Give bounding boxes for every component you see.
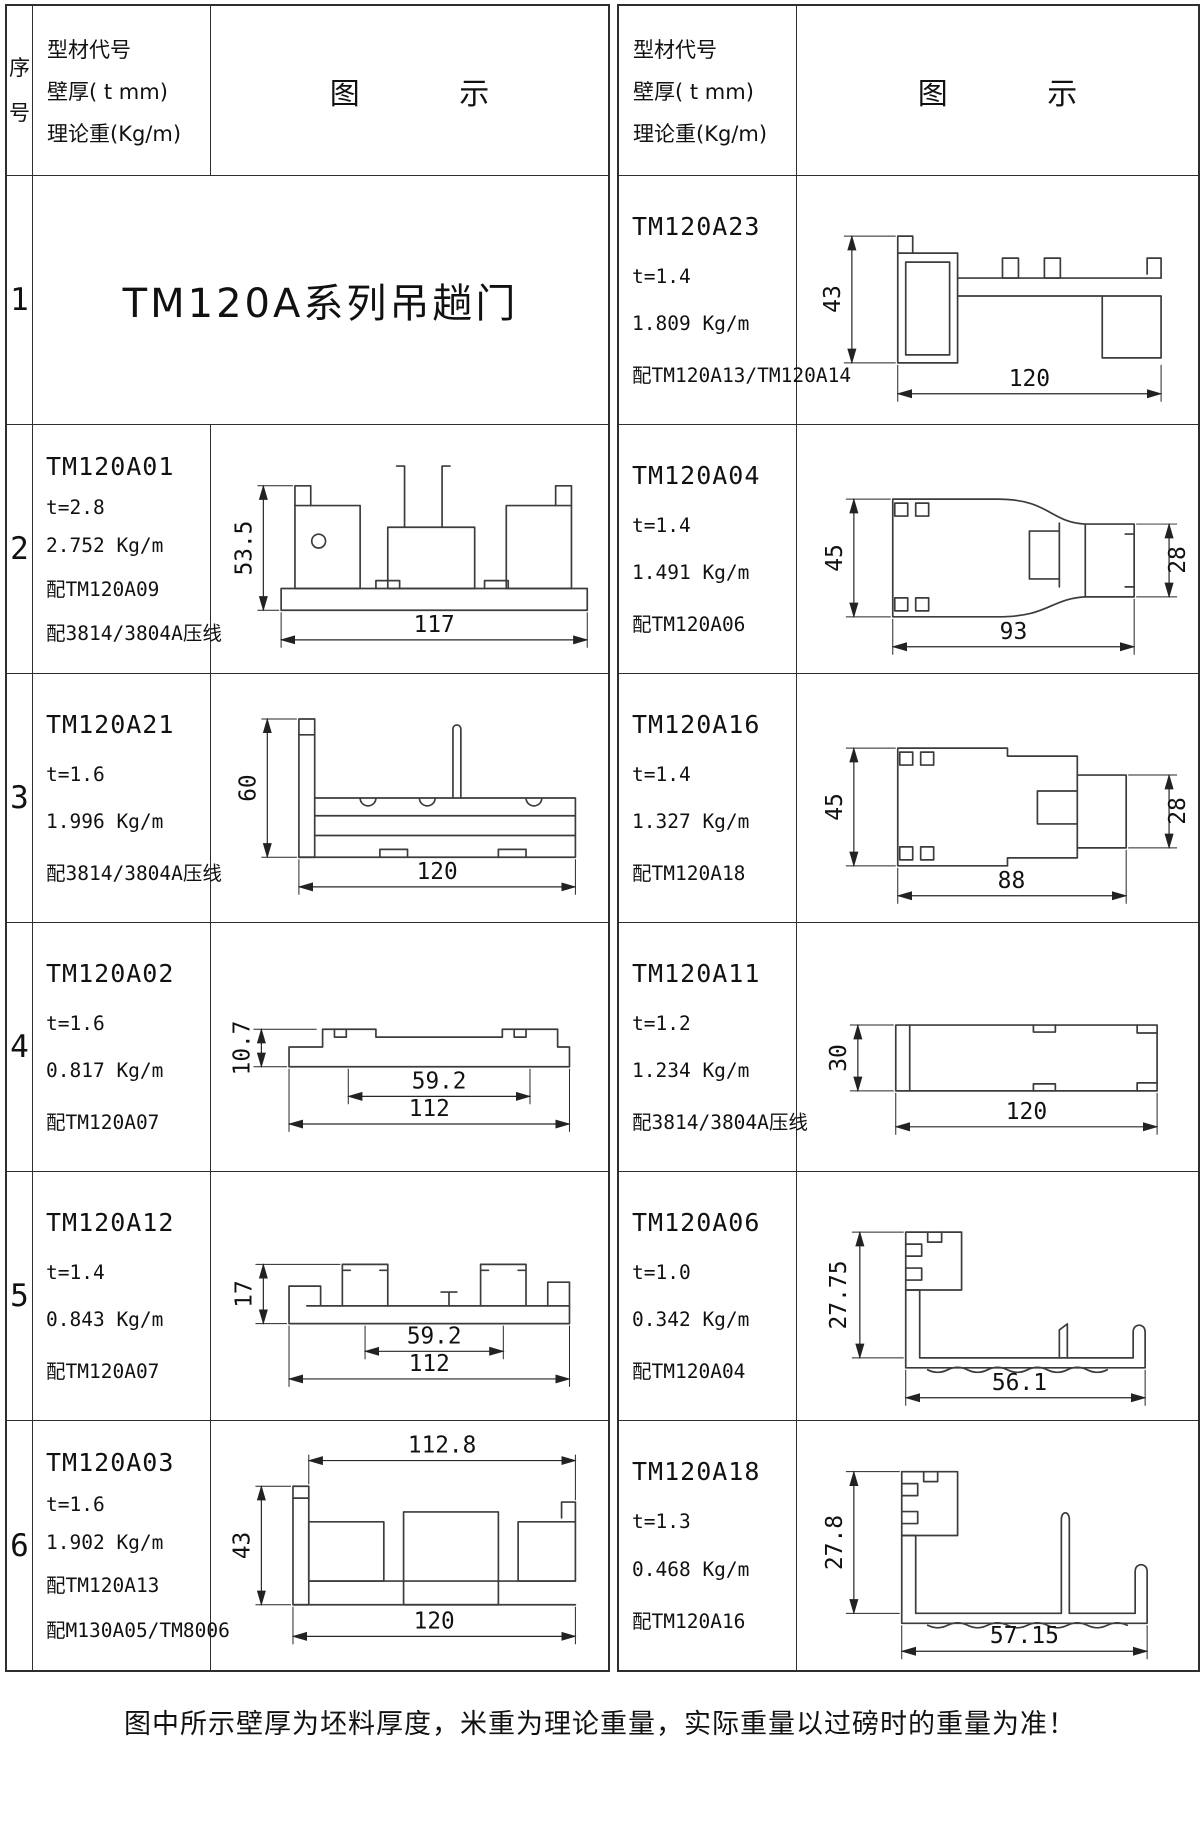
header-index: 序号 xyxy=(7,6,33,176)
pairing-profile: 配TM120A16 xyxy=(632,1605,792,1634)
pairing-profile: 配3814/3804A压线 xyxy=(46,617,206,646)
dim-height-label: 10.7 xyxy=(230,1021,256,1076)
dim-height-label: 53.5 xyxy=(232,521,258,576)
profile-weight: 1.491 Kg/m xyxy=(632,561,792,584)
row-index: 5 xyxy=(7,1172,33,1421)
profile-weight: 1.809 Kg/m xyxy=(632,312,792,335)
series-title: TM120A系列吊趟门 xyxy=(33,176,608,425)
diagram-cell: 45 28 88 xyxy=(797,674,1198,923)
header-spec-line1: 型材代号 xyxy=(633,34,796,64)
profile-drawing-TM120A11: 30 120 xyxy=(798,924,1197,1170)
row-index: 4 xyxy=(7,923,33,1172)
profile-weight: 1.234 Kg/m xyxy=(632,1059,792,1082)
profile-drawing-TM120A18: 27.8 57.15 xyxy=(798,1422,1197,1669)
wall-thickness: t=1.6 xyxy=(46,1493,206,1516)
dim-height-label: 27.8 xyxy=(822,1515,848,1570)
profile-drawing-TM120A16: 45 28 88 xyxy=(798,675,1197,921)
wall-thickness: t=1.6 xyxy=(46,763,206,786)
profile-spec: TM120A11 t=1.2 1.234 Kg/m 配3814/3804A压线 xyxy=(619,923,797,1172)
dim-height-label: 30 xyxy=(826,1044,852,1072)
diagram-cell: 43 120 xyxy=(797,176,1198,425)
profile-weight: 0.342 Kg/m xyxy=(632,1308,792,1331)
pairing-profile: 配TM120A09 xyxy=(46,573,206,602)
pairing-profile: 配TM120A13 xyxy=(46,1569,206,1598)
dim-right-height-label: 28 xyxy=(1165,546,1191,574)
profile-spec: TM120A21 t=1.6 1.996 Kg/m 配3814/3804A压线 xyxy=(33,674,211,923)
dim-inner-label: 59.2 xyxy=(407,1323,462,1349)
dim-width-label: 56.1 xyxy=(992,1370,1047,1396)
dim-height-label: 43 xyxy=(820,285,846,313)
profile-weight: 1.902 Kg/m xyxy=(46,1531,206,1554)
dim-height-label: 27.75 xyxy=(826,1260,852,1329)
dim-width-label: 120 xyxy=(414,1608,455,1634)
profile-weight: 2.752 Kg/m xyxy=(46,534,206,557)
wall-thickness: t=1.4 xyxy=(632,763,792,786)
profile-drawing-TM120A12: 17 59.2 112 xyxy=(212,1173,607,1419)
dim-height-label: 60 xyxy=(235,774,261,801)
dim-right-height-label: 28 xyxy=(1165,797,1191,825)
profile-drawing-TM120A03: 112.8 43 120 xyxy=(212,1422,607,1669)
profile-weight: 1.996 Kg/m xyxy=(46,810,206,833)
header-diagram: 图 示 xyxy=(211,6,608,176)
footer-note: 图中所示壁厚为坯料厚度，米重为理论重量，实际重量以过磅时的重量为准！ xyxy=(0,1702,1200,1741)
profile-spec: TM120A23 t=1.4 1.809 Kg/m 配TM120A13/TM12… xyxy=(619,176,797,425)
dim-width-label: 57.15 xyxy=(990,1623,1059,1649)
profile-spec: TM120A18 t=1.3 0.468 Kg/m 配TM120A16 xyxy=(619,1421,797,1670)
wall-thickness: t=1.4 xyxy=(46,1261,206,1284)
profile-spec: TM120A06 t=1.0 0.342 Kg/m 配TM120A04 xyxy=(619,1172,797,1421)
wall-thickness: t=2.8 xyxy=(46,496,206,519)
right-table: 型材代号 壁厚( t mm) 理论重(Kg/m) 图 示 TM120A23 t=… xyxy=(617,4,1200,1672)
profile-spec: TM120A04 t=1.4 1.491 Kg/m 配TM120A06 xyxy=(619,425,797,674)
header-spec: 型材代号 壁厚( t mm) 理论重(Kg/m) xyxy=(33,6,211,176)
pairing-profile: 配TM120A13/TM120A14 xyxy=(632,359,792,388)
profile-code: TM120A01 xyxy=(46,452,206,481)
dim-width-label: 120 xyxy=(417,859,458,885)
dim-width-label: 112 xyxy=(409,1096,450,1122)
pairing-profile: 配TM120A18 xyxy=(632,857,792,886)
profile-code: TM120A03 xyxy=(46,1448,206,1477)
profile-weight: 0.843 Kg/m xyxy=(46,1308,206,1331)
row-index: 6 xyxy=(7,1421,33,1670)
profile-drawing-TM120A02: 10.7 59.2 112 xyxy=(212,924,607,1170)
profile-code: TM120A02 xyxy=(46,959,206,988)
profile-drawing-TM120A04: 45 28 93 xyxy=(798,426,1197,672)
wall-thickness: t=1.3 xyxy=(632,1510,792,1533)
profile-drawing-TM120A01: 53.5 117 xyxy=(212,426,607,672)
wall-thickness: t=1.4 xyxy=(632,514,792,537)
header-spec-line2: 壁厚( t mm) xyxy=(47,76,210,106)
header-spec: 型材代号 壁厚( t mm) 理论重(Kg/m) xyxy=(619,6,797,176)
profile-code: TM120A04 xyxy=(632,461,792,490)
pairing-profile: 配TM120A06 xyxy=(632,608,792,637)
row-index: 2 xyxy=(7,425,33,674)
dim-height-label: 45 xyxy=(822,544,848,572)
diagram-cell: 17 59.2 112 xyxy=(211,1172,608,1421)
profile-code: TM120A21 xyxy=(46,710,206,739)
header-spec-line1: 型材代号 xyxy=(47,34,210,64)
diagram-cell: 45 28 93 xyxy=(797,425,1198,674)
diagram-cell: 60 120 xyxy=(211,674,608,923)
pairing-profile: 配TM120A07 xyxy=(46,1106,206,1135)
row-index: 1 xyxy=(7,176,33,425)
profile-weight: 0.817 Kg/m xyxy=(46,1059,206,1082)
dim-width-label: 93 xyxy=(1000,619,1028,645)
pairing-profile: 配TM120A04 xyxy=(632,1355,792,1384)
diagram-cell: 10.7 59.2 112 xyxy=(211,923,608,1172)
dim-width-label: 120 xyxy=(1006,1099,1047,1125)
pairing-profile: 配TM120A07 xyxy=(46,1355,206,1384)
profile-code: TM120A16 xyxy=(632,710,792,739)
profile-code: TM120A06 xyxy=(632,1208,792,1237)
diagram-cell: 30 120 xyxy=(797,923,1198,1172)
dim-width-label: 112 xyxy=(409,1351,450,1377)
pairing-profile: 配3814/3804A压线 xyxy=(632,1106,792,1135)
header-diagram: 图 示 xyxy=(797,6,1198,176)
header-spec-line3: 理论重(Kg/m) xyxy=(47,118,210,148)
wall-thickness: t=1.6 xyxy=(46,1012,206,1035)
diagram-cell: 27.8 57.15 xyxy=(797,1421,1198,1670)
dim-inner-label: 59.2 xyxy=(412,1068,467,1094)
wall-thickness: t=1.4 xyxy=(632,265,792,288)
dim-height-label: 45 xyxy=(822,793,848,821)
profile-spec: TM120A12 t=1.4 0.843 Kg/m 配TM120A07 xyxy=(33,1172,211,1421)
profile-spec: TM120A02 t=1.6 0.817 Kg/m 配TM120A07 xyxy=(33,923,211,1172)
dim-height-label: 17 xyxy=(232,1280,258,1307)
diagram-cell: 27.75 56.1 xyxy=(797,1172,1198,1421)
profile-spec: TM120A03 t=1.6 1.902 Kg/m 配TM120A13 配M13… xyxy=(33,1421,211,1670)
header-spec-line3: 理论重(Kg/m) xyxy=(633,118,796,148)
wall-thickness: t=1.0 xyxy=(632,1261,792,1284)
dim-width-label: 88 xyxy=(998,868,1026,894)
diagram-cell: 53.5 117 xyxy=(211,425,608,674)
left-table: 序号 型材代号 壁厚( t mm) 理论重(Kg/m) 图 示 1 TM120A… xyxy=(5,4,610,1672)
dim-width-label: 120 xyxy=(1009,366,1050,392)
wall-thickness: t=1.2 xyxy=(632,1012,792,1035)
pairing-profile: 配M130A05/TM8006 xyxy=(46,1614,206,1643)
profile-code: TM120A12 xyxy=(46,1208,206,1237)
profile-spec: TM120A01 t=2.8 2.752 Kg/m 配TM120A09 配381… xyxy=(33,425,211,674)
profile-code: TM120A18 xyxy=(632,1457,792,1486)
dim-width-label: 117 xyxy=(414,612,455,638)
profile-code: TM120A23 xyxy=(632,212,792,241)
profile-spec: TM120A16 t=1.4 1.327 Kg/m 配TM120A18 xyxy=(619,674,797,923)
row-index: 3 xyxy=(7,674,33,923)
profile-weight: 1.327 Kg/m xyxy=(632,810,792,833)
profile-code: TM120A11 xyxy=(632,959,792,988)
dim-height-label: 43 xyxy=(230,1532,256,1559)
profile-drawing-TM120A06: 27.75 56.1 xyxy=(798,1173,1197,1419)
pairing-profile: 配3814/3804A压线 xyxy=(46,857,206,886)
diagram-cell: 112.8 43 120 xyxy=(211,1421,608,1670)
header-spec-line2: 壁厚( t mm) xyxy=(633,76,796,106)
profile-drawing-TM120A23: 43 120 xyxy=(798,177,1197,423)
profile-weight: 0.468 Kg/m xyxy=(632,1558,792,1581)
profile-drawing-TM120A21: 60 120 xyxy=(212,675,607,921)
dim-top-label: 112.8 xyxy=(408,1433,476,1459)
